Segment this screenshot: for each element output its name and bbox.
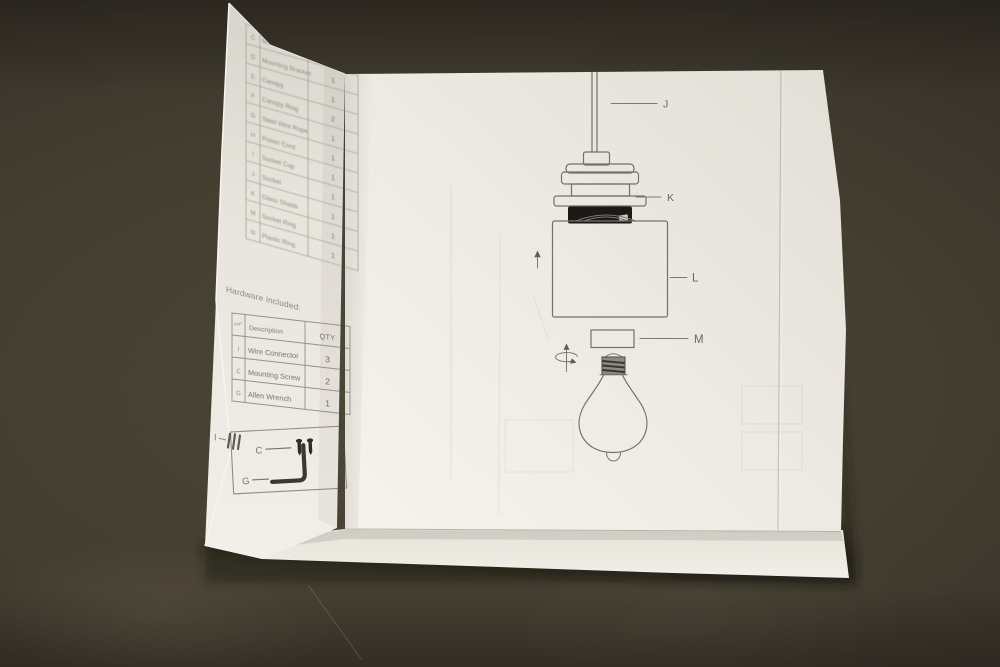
part-letter: D — [251, 53, 256, 61]
hardware-part-qty: 3 — [325, 354, 330, 365]
part-qty: 1 — [331, 153, 335, 163]
photo-of-instruction-sheet: C D E F G H I J K M N Mounting Screw Mou… — [0, 0, 1000, 667]
part-qty: 1 — [331, 94, 335, 104]
label-m: M — [694, 334, 704, 346]
surface-scratch — [308, 585, 362, 660]
scene: C D E F G H I J K M N Mounting Screw Mou… — [0, 0, 1000, 667]
part-qty: 1 — [331, 133, 335, 143]
key-letter-g: G — [242, 476, 250, 487]
part-letter: G — [251, 112, 256, 120]
part-qty: 1 — [331, 231, 335, 241]
hardware-part-letter: C — [236, 369, 241, 376]
part-letter: J — [251, 171, 254, 179]
part-letter: E — [251, 73, 255, 81]
hardware-part-qty: 1 — [325, 398, 330, 409]
part-letter: K — [251, 190, 255, 198]
part-letter: N — [251, 229, 255, 237]
part-letter: I — [252, 151, 254, 158]
hardware-part-letter: G — [236, 391, 241, 398]
part-letter: F — [251, 93, 255, 101]
key-letter-i: I — [214, 432, 217, 443]
label-k: K — [667, 192, 674, 204]
key-letter-c: C — [255, 445, 263, 456]
part-letter: C — [251, 34, 256, 42]
hardware-header-qty: QTY — [320, 331, 336, 342]
main-sheet — [345, 70, 846, 532]
label-j: J — [663, 99, 668, 111]
part-letter: H — [251, 131, 255, 139]
part-letter: M — [251, 209, 256, 217]
part-qty: 1 — [331, 75, 335, 85]
part-qty: 1 — [331, 172, 335, 182]
hardware-part-qty: 2 — [325, 376, 330, 387]
label-l: L — [692, 273, 699, 285]
part-qty: 2 — [331, 114, 335, 124]
part-qty: 1 — [331, 192, 335, 202]
part-qty: 1 — [331, 250, 335, 260]
part-qty: 1 — [331, 211, 335, 221]
